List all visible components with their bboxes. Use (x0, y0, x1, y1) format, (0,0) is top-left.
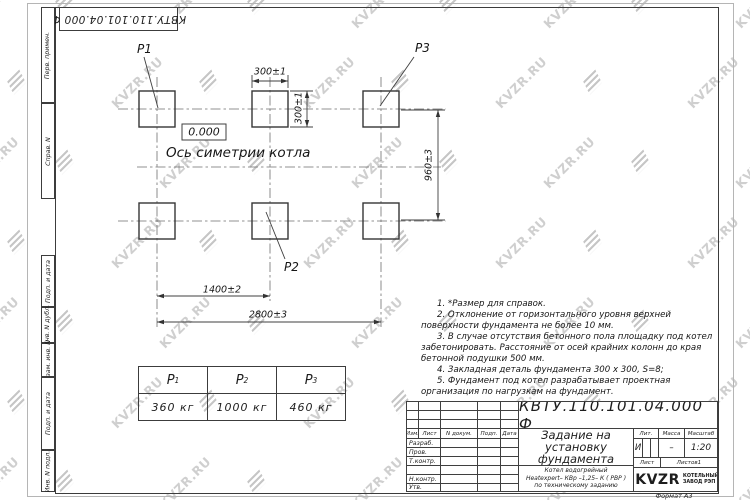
centerlines (118, 77, 446, 327)
elevation-mark: 0.000 (188, 126, 220, 139)
dimension-overall: 2800±3 (249, 310, 287, 321)
note-1: 1. *Размер для справок. (421, 299, 716, 310)
load-value-p2: 1000 кг (207, 393, 277, 421)
dimension-pad-height: 300±1 (294, 92, 305, 124)
sig-cell (440, 483, 478, 492)
kvzr-logo-caption: КОТЕЛЬНЫЙ ЗАВОД РЭП (683, 474, 718, 485)
side-box-sprav-n: Справ. N (41, 103, 55, 199)
title-block: Изм. Лист N докум. Подп. Дата Разраб. Пр… (406, 401, 718, 492)
sig-cell (477, 483, 501, 492)
load-value-p3: 460 кг (276, 393, 346, 421)
scale-value: 1:20 (684, 438, 718, 458)
rotated-doc-number-stamp: КВТУ.110.101.04.000 Ф (59, 7, 178, 31)
note-2: 2. Отклонение от горизонтального уровня … (421, 310, 716, 332)
pad-label-p2: P2 (284, 260, 299, 274)
format-label: Формат А3 (631, 492, 717, 500)
load-value-p1: 360 кг (138, 393, 208, 421)
side-box-vzam-inv: Взам. инв. N (41, 343, 55, 377)
dimension-pad-width: 300±1 (254, 67, 286, 78)
drawing-sheet: KVZR.RUKVZR.RUKVZR.RUKVZR.RUKVZR.RUKVZR.… (0, 0, 750, 500)
note-4: 4. Закладная деталь фундамента 300 х 300… (421, 365, 716, 376)
side-box-podp-data-1: Подп. и дата (41, 255, 55, 307)
sheets-label: Листов (677, 460, 698, 466)
kvzr-logo-text: KVZR (635, 472, 680, 488)
load-table-header-p3: P3 (276, 366, 346, 394)
company-logo: KVZR КОТЕЛЬНЫЙ ЗАВОД РЭП (633, 467, 718, 492)
side-box-perv-primen: Перв. примен. (41, 7, 55, 103)
sheets-value: 1 (698, 460, 702, 466)
note-5: 5. Фундамент под котел разрабатывает про… (421, 376, 716, 398)
sig-cell (500, 483, 519, 492)
pad-label-p1: P1 (137, 42, 152, 56)
foundation-pads (139, 91, 399, 239)
technical-notes: 1. *Размер для справок. 2. Отклонение от… (421, 299, 716, 398)
rotated-doc-number: КВТУ.110.101.04.000 Ф (51, 13, 186, 25)
mass-value: – (658, 438, 685, 458)
kvzr-logo-icon (633, 472, 634, 487)
row-utv: Утв. (406, 483, 441, 492)
dimension-mid-spacing: 1400±2 (203, 285, 241, 296)
side-box-inv-dubl: Инв. N дубл. (41, 307, 55, 343)
load-table-header-p1: P1 (138, 366, 208, 394)
load-table-header-p2: P2 (207, 366, 277, 394)
side-box-podp-data-2: Подп. и дата (41, 377, 55, 450)
pad-label-p3: P3 (415, 41, 430, 55)
symmetry-axis-label: Ось симетрии котла (166, 145, 310, 161)
drawing-title: Задание на установку фундамента (518, 428, 634, 466)
doc-number: КВТУ.110.101.04.000 Ф (518, 401, 718, 429)
note-3: 3. В случае отсутствия бетонного пола пл… (421, 332, 716, 365)
side-box-inv-podl: Инв. N подл. (41, 450, 55, 492)
drawing-subtitle: Котел водогрейный Heatexpert– КВр –1,25–… (518, 465, 634, 492)
dimension-row-spacing: 960±3 (424, 149, 435, 181)
